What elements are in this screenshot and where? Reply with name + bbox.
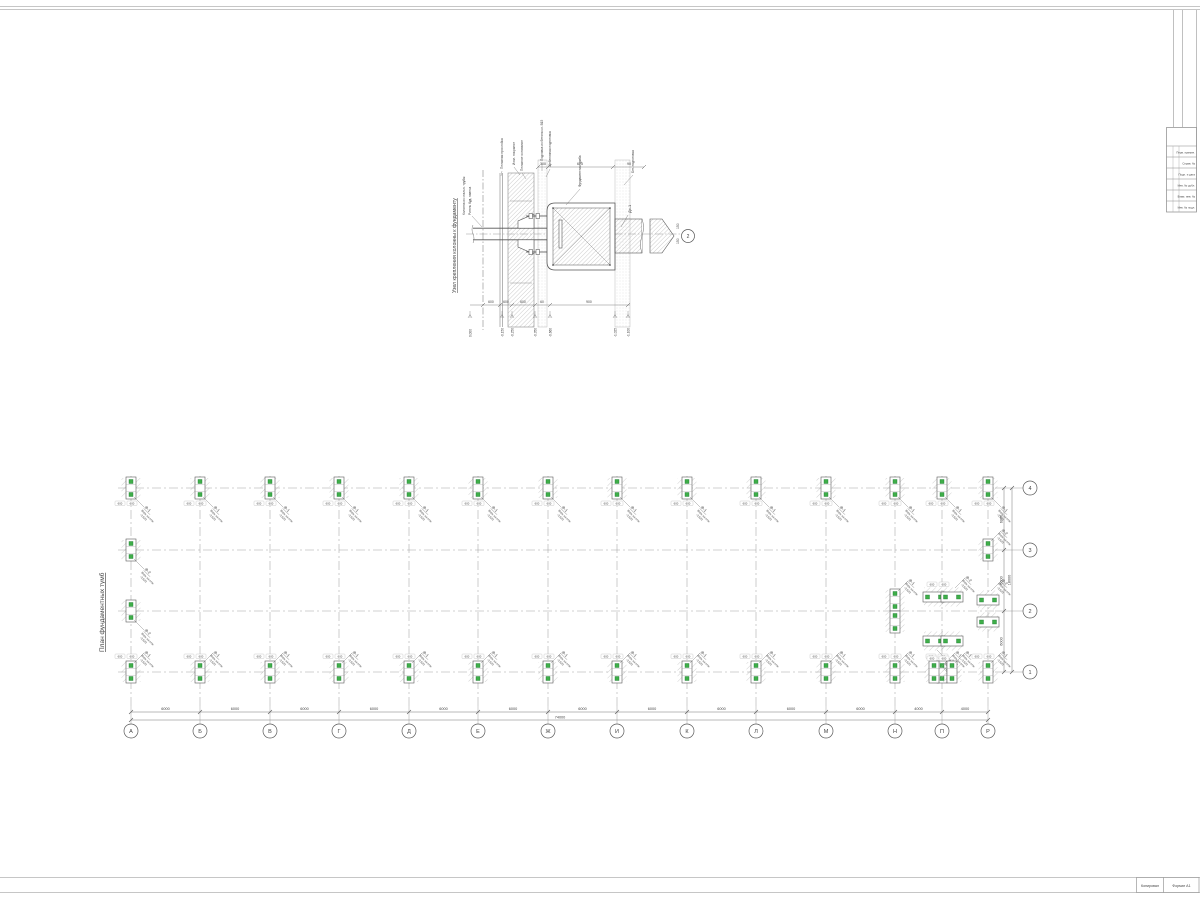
leader-label: Песчаное основание	[520, 140, 524, 171]
plan-title: План фундаментных тумб	[98, 572, 106, 652]
hatch	[692, 478, 697, 498]
bay-dim: 6000	[370, 707, 378, 711]
micro-dim: 600	[882, 655, 887, 659]
foundation-symbol	[191, 661, 210, 683]
hatch	[831, 478, 836, 498]
anchor-bolt-group	[129, 493, 133, 497]
anchor-bolt-group	[407, 677, 411, 681]
anchor-bolt-group	[129, 480, 133, 484]
foundation-ledge	[615, 219, 642, 253]
foundation-symbol	[122, 600, 141, 622]
block-corner-dot	[552, 207, 554, 209]
hatch	[622, 478, 627, 498]
anchor-bolt-group	[893, 592, 897, 596]
anchor-bolt-group	[932, 677, 936, 681]
hatch	[678, 662, 683, 682]
hatch	[400, 478, 405, 498]
grid-bubble-label: Ж	[545, 729, 550, 735]
foundation-label: Ф-1Верх на отм.-0.620	[833, 505, 855, 527]
foundation-label: Ф-1Верх на отм.-0.620	[346, 505, 368, 527]
grid-bubble-label: Б	[198, 729, 202, 735]
anchor-bolt-group	[337, 677, 341, 681]
anchor-bolt-group	[476, 664, 480, 668]
hatch	[191, 478, 196, 498]
margin-block-extension-line	[1182, 10, 1183, 127]
bay-dim: 6000	[1000, 637, 1004, 645]
anchor-bolt-group	[993, 598, 997, 602]
foundation-symbol	[747, 477, 766, 499]
foundation-label: Ф-1Верх на отм.-0.620	[902, 650, 924, 672]
grid-bubble-label: Р	[986, 729, 990, 735]
micro-dim: 600	[894, 502, 899, 506]
anchor-bolt-group	[944, 639, 948, 643]
hatch	[933, 478, 938, 498]
foundation-label: Ф-1Верх на отм.-0.620	[555, 505, 577, 527]
anchor-bolt-group	[268, 493, 272, 497]
micro-dim: 600	[118, 655, 123, 659]
micro-dim: 600	[813, 502, 818, 506]
micro-dim: 600	[396, 502, 401, 506]
grid-bubble-label: 2	[1028, 609, 1031, 615]
foundation-symbol	[886, 661, 905, 683]
section-bubble-label: 2	[687, 234, 690, 240]
hatch	[136, 540, 141, 560]
anchor-bolt-group	[824, 480, 828, 484]
bay-dim: 6000	[1000, 576, 1004, 584]
foundation-symbol	[979, 661, 998, 683]
foundation-symbol	[608, 661, 627, 683]
hatch	[136, 478, 141, 498]
foundation-label: Ф-2Верх на отм.-0.620	[138, 567, 160, 589]
anchor-bolt-group	[957, 639, 961, 643]
foundation-symbol	[330, 477, 349, 499]
anchor-bolt-group	[685, 677, 689, 681]
hatch	[761, 478, 766, 498]
detail-elevations: 0.000-0.150-0.250-0.350-0.660-1.025-1.10…	[468, 311, 630, 337]
micro-dim: 600	[686, 502, 691, 506]
micro-dim: 600	[547, 655, 552, 659]
anchor-bolt-group	[337, 480, 341, 484]
micro-dim: 600	[535, 655, 540, 659]
hatch	[122, 540, 127, 560]
hatch	[469, 478, 474, 498]
foundation-label: Ф-1Верх на отм.-0.620	[624, 505, 646, 527]
anchor-bolt-group	[893, 614, 897, 618]
hatch	[608, 662, 613, 682]
anchor-bolt-group	[824, 493, 828, 497]
micro-dim: 600	[743, 655, 748, 659]
anchor-bolt-group	[198, 664, 202, 668]
grid-bubble-label: 4	[1028, 486, 1031, 492]
detail-title: Узел крепления колонны к фундаменту	[452, 198, 458, 293]
anchor-bolt-group	[980, 598, 984, 602]
hatch	[900, 612, 905, 632]
grid-bubble-label: Л	[754, 729, 758, 735]
hatch	[275, 478, 280, 498]
hatch	[483, 478, 488, 498]
hatch	[553, 478, 558, 498]
elevation-value: -0.150	[500, 328, 504, 337]
micro-dim: 600	[408, 502, 413, 506]
margin-row-label: Взам. инв. №	[1178, 195, 1195, 199]
anchor-bolt-group	[893, 677, 897, 681]
anchor-bolt-group	[950, 664, 954, 668]
leader-label: Изол. покрытие	[512, 142, 516, 165]
block-corner-dot	[609, 207, 611, 209]
anchor-bolt-group	[932, 664, 936, 668]
anchor-bolt-group	[986, 542, 990, 546]
elevation-value: -0.250	[510, 328, 514, 337]
block-corner-dot	[552, 264, 554, 266]
anchor-bolt-group	[950, 677, 954, 681]
anchor-bolt-group	[268, 677, 272, 681]
anchor-bolt-group	[893, 664, 897, 668]
foundation-symbol	[330, 661, 349, 683]
micro-dim: 600	[130, 655, 135, 659]
micro-dim: 600	[338, 655, 343, 659]
dim-text: 600	[503, 300, 509, 304]
bay-dim: 4000	[961, 707, 969, 711]
grid-bubble-label: Н	[893, 729, 897, 735]
foundation-symbol	[886, 589, 905, 611]
hatch	[469, 662, 474, 682]
foundation-symbol	[747, 661, 766, 683]
hatch	[747, 478, 752, 498]
foundation-symbol	[539, 477, 558, 499]
foundation-label: Ф-1Верх на отм.-0.620	[138, 650, 160, 672]
hatch	[539, 478, 544, 498]
micro-dim: 600	[930, 657, 935, 661]
hatch	[957, 662, 962, 682]
micro-dim: 600	[187, 655, 192, 659]
hatch	[886, 612, 891, 632]
anchor-bolt-group	[198, 493, 202, 497]
micro-dim: 600	[326, 502, 331, 506]
hatch	[947, 478, 952, 498]
foundation-symbol	[400, 661, 419, 683]
margin-row-label: Перв. примен.	[1176, 151, 1195, 155]
bay-dim: 6000	[648, 707, 656, 711]
foundation-label: Ф-1Верх на отм.-0.620	[555, 650, 577, 672]
side-dim: 150	[676, 223, 680, 229]
stamp-left-label: Копировал	[1141, 884, 1159, 888]
arrow-piece	[650, 219, 674, 253]
elevation-value: -1.100	[626, 328, 630, 337]
grid-bubble-label: Д	[407, 729, 411, 735]
bay-dim: 6000	[439, 707, 447, 711]
grid-bubble-label: П	[940, 729, 944, 735]
foundation-symbol	[261, 661, 280, 683]
micro-dim: 600	[547, 502, 552, 506]
hatch	[886, 478, 891, 498]
hatch	[692, 662, 697, 682]
micro-dim: 600	[257, 502, 262, 506]
anchor-bolt-group	[893, 627, 897, 631]
leader-line	[134, 620, 145, 631]
bay-dim: 6000	[787, 707, 795, 711]
foundation-label: Ф-1Верх на отм.-0.620	[833, 650, 855, 672]
hatch	[191, 662, 196, 682]
hatch	[414, 478, 419, 498]
foundation-symbol	[191, 477, 210, 499]
anchor-bolt-group	[129, 664, 133, 668]
micro-dim: 600	[755, 655, 760, 659]
column-end-plate	[559, 220, 562, 248]
margin-row-label: Инв. № подл.	[1178, 206, 1196, 210]
foundation-label: Ф-1Верх на отм.-0.620	[207, 505, 229, 527]
grid-bubble-label: М	[824, 729, 829, 735]
micro-dim: 600	[942, 657, 947, 661]
margin-block-frame	[1167, 128, 1197, 213]
foundation-symbol	[122, 477, 141, 499]
micro-dim: 600	[882, 502, 887, 506]
foundation-symbol	[817, 661, 836, 683]
micro-dim: 600	[477, 655, 482, 659]
anchor-bolt-group	[546, 664, 550, 668]
foundation-symbol	[539, 661, 558, 683]
foundation-symbol	[400, 477, 419, 499]
foundation-label: Ф-1Верх на отм.-0.620	[624, 650, 646, 672]
hatch	[886, 662, 891, 682]
anchor-bolt-group	[615, 664, 619, 668]
hatch	[886, 590, 891, 610]
anchor-bolt-group	[940, 480, 944, 484]
bay-dim: 6000	[300, 707, 308, 711]
foundation-symbol	[925, 661, 944, 683]
hatch	[900, 590, 905, 610]
micro-dim: 600	[604, 502, 609, 506]
anchor-bolt-group	[129, 603, 133, 607]
anchor-bolt-group	[986, 480, 990, 484]
micro-dim: 600	[326, 655, 331, 659]
hatch	[943, 662, 948, 682]
foundation-label: Ф-1Верх на отм.-0.620	[995, 650, 1017, 672]
micro-dim: 600	[975, 655, 980, 659]
leader-label: Ригель буд. навеса	[468, 186, 472, 215]
foundation-label: Ф-1Верх на отм.-0.620	[485, 505, 507, 527]
hatch	[344, 478, 349, 498]
foundation-symbol	[122, 539, 141, 561]
dim-text: 625	[577, 162, 583, 166]
micro-dim: 600	[604, 655, 609, 659]
foundation-label: Ф-1Верх на отм.-0.620	[277, 650, 299, 672]
foundation-symbol	[122, 661, 141, 683]
hatch	[678, 478, 683, 498]
foundation-label: Ф-1Верх на отм.-0.620	[416, 505, 438, 527]
elevation-value: -0.660	[548, 328, 552, 337]
anchor-bolt-group	[268, 480, 272, 484]
bay-dim: 6000	[1000, 515, 1004, 523]
foundation-symbol	[469, 477, 488, 499]
anchor-bolt-group	[993, 620, 997, 624]
margin-block-extension-line	[1173, 10, 1174, 127]
anchor-bolt-group	[957, 595, 961, 599]
micro-dim: 600	[987, 655, 992, 659]
hatch	[993, 540, 998, 560]
anchor-bolt-group	[268, 664, 272, 668]
anchor-bolt-group	[926, 639, 930, 643]
anchor-bolt-group	[754, 493, 758, 497]
sheet-border-bottom-outer	[0, 877, 1200, 878]
hatch	[136, 601, 141, 621]
hatch	[817, 662, 822, 682]
micro-dim: 600	[813, 655, 818, 659]
hatch	[747, 662, 752, 682]
anchor-bolt-group	[615, 493, 619, 497]
bay-dim: 6000	[856, 707, 864, 711]
micro-dim: 600	[929, 502, 934, 506]
foundation-symbol	[886, 477, 905, 499]
anchor-bolt-group	[407, 493, 411, 497]
anchor-bolt-group	[940, 493, 944, 497]
micro-dim: 600	[894, 655, 899, 659]
micro-dim: 600	[535, 502, 540, 506]
anchor-bolt-group	[546, 480, 550, 484]
foundation-symbol	[886, 611, 905, 633]
overall-dim: 74000	[555, 715, 566, 719]
foundation-label: Ф-1Верх на отм.-0.620	[902, 578, 924, 600]
foundation-label: Ф-2Верх на отм.-0.620	[138, 628, 160, 650]
anchor-bolt-group	[129, 616, 133, 620]
hatch	[979, 662, 984, 682]
foundation-label: Ф-1Верх на отм.-0.620	[694, 650, 716, 672]
hatch	[330, 478, 335, 498]
foundation-label: Ф-1Верх на отм.-0.620	[949, 505, 971, 527]
micro-dim: 600	[674, 502, 679, 506]
elevation-value: -1.025	[613, 328, 617, 337]
hatch	[414, 662, 419, 682]
hatch	[831, 662, 836, 682]
anchor-bolt-group	[407, 480, 411, 484]
foundation-symbol	[977, 613, 999, 632]
micro-dim: 600	[755, 502, 760, 506]
anchor-bolt-group	[986, 664, 990, 668]
dim-text: 90	[627, 162, 631, 166]
leader-label: Подливка из бетона кл. В15	[540, 120, 544, 161]
hatch	[993, 478, 998, 498]
micro-dim: 600	[465, 502, 470, 506]
margin-row-label: Справ. №	[1182, 162, 1195, 166]
hatch	[122, 478, 127, 498]
hatch	[900, 662, 905, 682]
hatch	[608, 478, 613, 498]
format-stamp: Копировал Формат А1	[1136, 877, 1200, 894]
anchor-bolt-group	[986, 493, 990, 497]
anchor-bolt-group	[944, 595, 948, 599]
grid-bubble-label: И	[615, 729, 619, 735]
micro-dim: 600	[942, 583, 947, 587]
foundation-label: Ф-1Верх на отм.-0.620	[138, 505, 160, 527]
anchor-bolt-group	[546, 493, 550, 497]
margin-block: Перв. примен.Справ. №Подп. и датаИнв. № …	[1166, 127, 1198, 213]
grid-bubble-label: 1	[1028, 670, 1031, 676]
foundation-label: Ф-1Верх на отм.-0.620	[902, 505, 924, 527]
foundation-label: Ф-1Верх на отм.-0.620	[763, 650, 785, 672]
micro-dim: 600	[199, 655, 204, 659]
grid-bubble-label: А	[129, 729, 133, 735]
foundation-label: Ф-1Верх на отм.-0.620	[485, 650, 507, 672]
anchor-bolt-group	[546, 677, 550, 681]
foundation-symbol	[817, 477, 836, 499]
micro-dim: 600	[825, 502, 830, 506]
margin-row-label: Инв. № дубл.	[1178, 184, 1196, 188]
anchor-bolt-group	[337, 664, 341, 668]
hatch	[539, 662, 544, 682]
foundation-label: Ф-1Верх на отм.-0.620	[416, 650, 438, 672]
sheet-border-top-inner	[0, 9, 1200, 10]
anchor-bolt-group	[615, 677, 619, 681]
hatch	[400, 662, 405, 682]
micro-dim: 600	[465, 655, 470, 659]
anchor-bolt-group	[986, 555, 990, 559]
leader-label: Бет. подготовка	[631, 150, 635, 173]
hatch	[979, 478, 984, 498]
margin-row-label: Подп. и дата	[1179, 173, 1196, 177]
anchor-bolt-group	[986, 677, 990, 681]
elevation-value: 0.000	[468, 329, 472, 337]
bay-dim: 6000	[231, 707, 239, 711]
anchor-bolt-group	[198, 677, 202, 681]
micro-dim: 600	[975, 502, 980, 506]
anchor-bolt-group	[893, 493, 897, 497]
foundation-symbol	[608, 477, 627, 499]
micro-dim: 600	[338, 502, 343, 506]
anchor-bolt-group	[476, 480, 480, 484]
dim-text: 60	[540, 300, 544, 304]
hatch	[205, 478, 210, 498]
foundation-symbol	[469, 661, 488, 683]
anchor-bolt-group	[407, 664, 411, 668]
anchor-bolt-group	[476, 493, 480, 497]
foundation-symbol	[943, 661, 962, 683]
anchor-bolt-group	[754, 677, 758, 681]
dim-text: 600	[488, 300, 494, 304]
anchor-bolt-group	[615, 480, 619, 484]
micro-dim: 600	[257, 655, 262, 659]
anchor-bolt-group	[685, 480, 689, 484]
foundation-symbol	[941, 632, 963, 651]
micro-dim: 600	[187, 502, 192, 506]
micro-dim: 600	[616, 655, 621, 659]
elevation-value: -0.350	[533, 328, 537, 337]
micro-dim: 600	[118, 502, 123, 506]
hatch	[817, 478, 822, 498]
foundation-symbol	[678, 661, 697, 683]
micro-dim: 600	[930, 583, 935, 587]
anchor-bolt-group	[824, 664, 828, 668]
block-corner-dot	[609, 264, 611, 266]
dim-text: 900	[586, 300, 592, 304]
foundation-label: Ф-2Верх на отм.-0.620	[995, 528, 1017, 550]
micro-dim: 600	[477, 502, 482, 506]
anchor-bolt-group	[685, 493, 689, 497]
detail-bottom-dims: 600 600 600 60 900	[470, 300, 630, 307]
bay-dim: 6000	[717, 707, 725, 711]
hatch	[483, 662, 488, 682]
anchor-bolt-group	[198, 480, 202, 484]
bay-dim: 6000	[161, 707, 169, 711]
micro-dim: 600	[686, 655, 691, 659]
micro-dim: 600	[269, 655, 274, 659]
anchor-bolt-group	[129, 555, 133, 559]
micro-dim: 600	[674, 655, 679, 659]
foundation-symbol	[979, 477, 998, 499]
leader-label: Щебеночная подготовка	[548, 131, 552, 167]
micro-dim: 600	[269, 502, 274, 506]
foundation-symbol	[261, 477, 280, 499]
grid-bubble-label: 3	[1028, 548, 1031, 554]
bay-dim: 6000	[509, 707, 517, 711]
